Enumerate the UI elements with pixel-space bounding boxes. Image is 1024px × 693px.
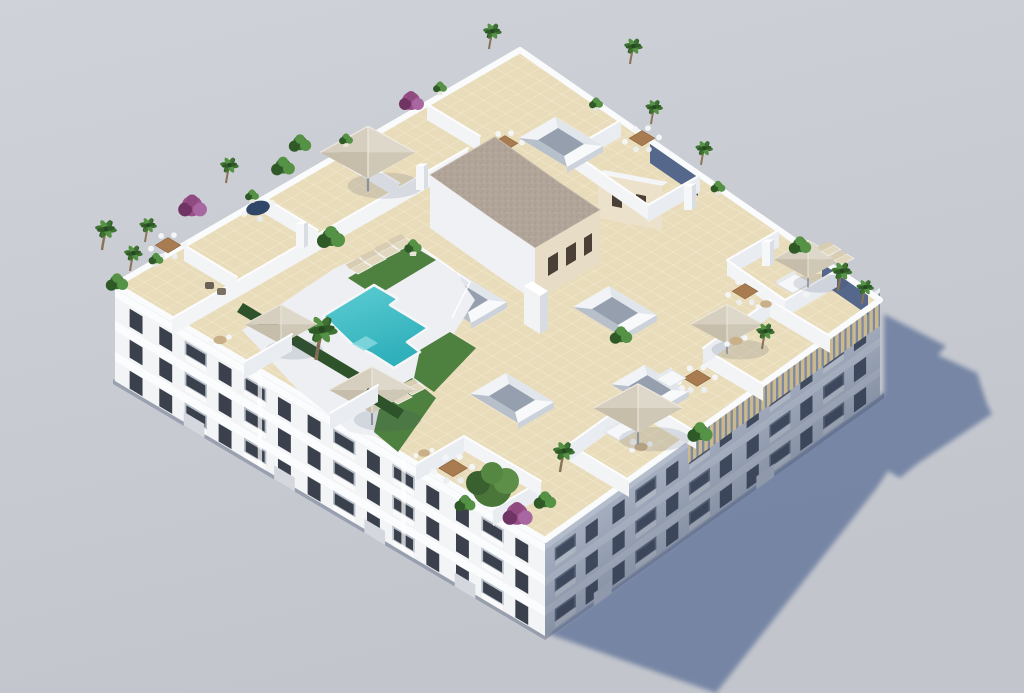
render-canvas <box>0 0 1024 693</box>
chimney-pillar <box>762 240 774 267</box>
rooftop-render-svg <box>0 0 1024 693</box>
pilaster <box>258 370 262 469</box>
pilaster <box>401 455 405 554</box>
chimney-pillar <box>416 164 428 191</box>
chimney-pillar <box>296 222 308 249</box>
chimney-pillar <box>684 184 696 211</box>
chimney <box>524 281 548 334</box>
